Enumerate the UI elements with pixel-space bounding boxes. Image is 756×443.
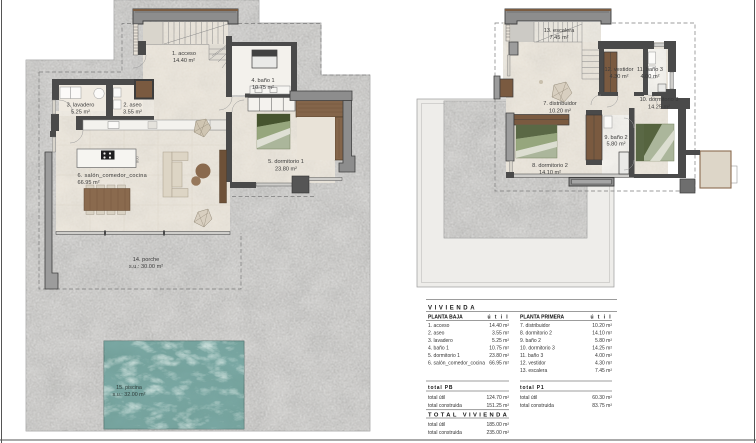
svg-text:7.45 m²: 7.45 m² — [595, 368, 612, 374]
svg-text:5.80 m²: 5.80 m² — [595, 338, 612, 344]
svg-text:4. baño 1: 4. baño 1 — [251, 78, 274, 84]
svg-text:83.75 m²: 83.75 m² — [592, 403, 612, 409]
svg-text:6. salón_comedor_cocina: 6. salón_comedor_cocina — [428, 361, 485, 367]
svg-text:total construida: total construida — [428, 403, 462, 409]
svg-text:total útil: total útil — [520, 395, 537, 401]
svg-text:5.25 m²: 5.25 m² — [71, 110, 90, 116]
svg-text:235.00 m²: 235.00 m² — [486, 430, 509, 436]
svg-text:TOTAL VIVIENDA: TOTAL VIVIENDA — [428, 413, 509, 419]
svg-text:4.30 m²: 4.30 m² — [595, 361, 612, 367]
svg-text:10.20 m²: 10.20 m² — [592, 323, 612, 329]
svg-text:3.55 m²: 3.55 m² — [492, 331, 509, 337]
svg-text:12. vestidor: 12. vestidor — [605, 67, 634, 73]
svg-text:4.30 m²: 4.30 m² — [610, 74, 629, 80]
svg-text:6. salón_comedor_cocina: 6. salón_comedor_cocina — [78, 173, 148, 179]
svg-text:66.95 m²: 66.95 m² — [78, 180, 100, 186]
svg-text:s.u.: 32.00 m²: s.u.: 32.00 m² — [113, 392, 146, 398]
svg-text:5. dormitorio 1: 5. dormitorio 1 — [268, 159, 304, 165]
svg-text:total P1: total P1 — [520, 385, 544, 391]
svg-text:14. porche: 14. porche — [133, 257, 159, 263]
svg-text:total construida: total construida — [428, 430, 462, 436]
svg-text:23.80 m²: 23.80 m² — [275, 167, 297, 173]
svg-text:total construida: total construida — [520, 403, 554, 409]
svg-text:9. baño 2: 9. baño 2 — [604, 135, 627, 141]
svg-text:9. baño 2: 9. baño 2 — [520, 338, 541, 344]
svg-text:s.u.: 30.00 m²: s.u.: 30.00 m² — [129, 264, 163, 270]
svg-text:5.25 m²: 5.25 m² — [492, 338, 509, 344]
svg-text:5.80 m²: 5.80 m² — [607, 142, 626, 148]
svg-text:15. piscina: 15. piscina — [116, 385, 142, 391]
svg-text:total útil: total útil — [428, 395, 445, 401]
svg-text:total PB: total PB — [428, 385, 453, 391]
svg-text:PLANTA PRIMERA: PLANTA PRIMERA — [520, 315, 565, 321]
svg-text:11. baño 3: 11. baño 3 — [637, 67, 663, 73]
svg-text:7. distribuidor: 7. distribuidor — [543, 101, 577, 107]
svg-text:60.30 m²: 60.30 m² — [592, 395, 612, 401]
svg-text:2. aseo: 2. aseo — [428, 331, 445, 337]
svg-text:14.25 m²: 14.25 m² — [592, 346, 612, 352]
svg-text:800: 800 — [135, 156, 140, 163]
svg-text:7.45 m²: 7.45 m² — [550, 35, 569, 41]
svg-text:12. vestidor: 12. vestidor — [520, 361, 546, 367]
svg-text:3. lavadero: 3. lavadero — [428, 338, 453, 344]
svg-text:7. distribuidor: 7. distribuidor — [520, 323, 550, 329]
svg-text:66.95 m²: 66.95 m² — [489, 361, 509, 367]
svg-text:13. escalera: 13. escalera — [544, 28, 575, 34]
svg-text:14.40 m²: 14.40 m² — [489, 323, 509, 329]
svg-text:185.00 m²: 185.00 m² — [486, 422, 509, 428]
svg-text:5. dormitorio 1: 5. dormitorio 1 — [428, 353, 460, 359]
svg-text:3.55 m²: 3.55 m² — [123, 110, 142, 116]
svg-text:8. dormitorio 2: 8. dormitorio 2 — [520, 331, 552, 337]
svg-text:3. lavadero: 3. lavadero — [67, 103, 95, 109]
svg-text:13. escalera: 13. escalera — [520, 368, 547, 374]
svg-text:4. baño 1: 4. baño 1 — [428, 346, 449, 352]
svg-text:10.75 m²: 10.75 m² — [252, 85, 274, 91]
svg-text:total útil: total útil — [428, 422, 445, 428]
svg-text:10.20 m²: 10.20 m² — [549, 109, 571, 115]
svg-text:1. acceso: 1. acceso — [172, 51, 196, 57]
svg-text:10. dormitorio 3: 10. dormitorio 3 — [520, 346, 555, 352]
svg-text:ú t i l: ú t i l — [488, 315, 509, 321]
svg-text:ú t i l: ú t i l — [591, 315, 612, 321]
svg-text:14.10 m²: 14.10 m² — [592, 331, 612, 337]
svg-text:14.40 m²: 14.40 m² — [173, 58, 195, 64]
svg-text:124.70 m²: 124.70 m² — [486, 395, 509, 401]
svg-text:2. aseo: 2. aseo — [123, 103, 141, 109]
svg-text:1. acceso: 1. acceso — [428, 323, 450, 329]
svg-text:4.00 m²: 4.00 m² — [595, 353, 612, 359]
svg-text:14.25 m²: 14.25 m² — [648, 105, 670, 111]
svg-text:PLANTA BAJA: PLANTA BAJA — [428, 315, 463, 321]
svg-text:10.75 m²: 10.75 m² — [489, 346, 509, 352]
svg-text:11. baño 3: 11. baño 3 — [520, 353, 543, 359]
svg-text:10. dormitorio 3: 10. dormitorio 3 — [640, 97, 679, 103]
svg-text:8. dormitorio 2: 8. dormitorio 2 — [532, 163, 568, 169]
svg-text:151.25 m²: 151.25 m² — [486, 403, 509, 409]
svg-text:4.00 m²: 4.00 m² — [641, 74, 660, 80]
svg-text:14.10 m²: 14.10 m² — [539, 170, 561, 176]
svg-text:VIVIENDA: VIVIENDA — [428, 306, 477, 312]
svg-text:23.80 m²: 23.80 m² — [489, 353, 509, 359]
